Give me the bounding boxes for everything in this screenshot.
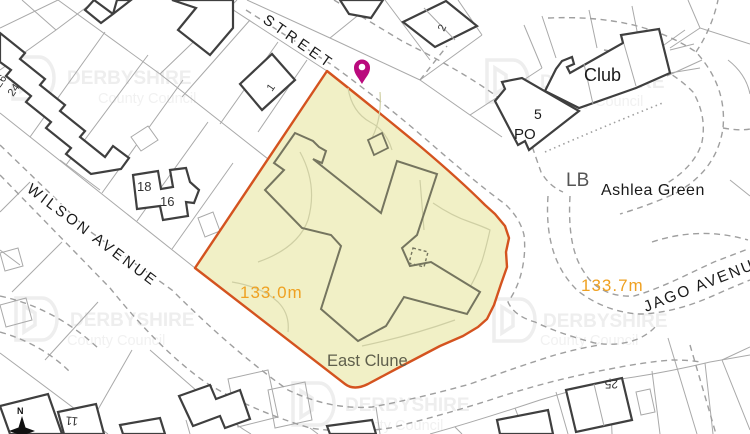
svg-text:County Council: County Council: [98, 91, 196, 107]
svg-text:Club: Club: [584, 65, 621, 85]
svg-text:133.7m: 133.7m: [581, 276, 644, 295]
svg-text:N: N: [17, 406, 24, 416]
svg-text:Ashlea Green: Ashlea Green: [601, 182, 705, 199]
svg-text:133.0m: 133.0m: [240, 283, 303, 302]
svg-text:16: 16: [160, 194, 174, 209]
svg-text:County Council: County Council: [67, 333, 165, 349]
svg-text:County Council: County Council: [540, 333, 638, 349]
svg-text:5: 5: [534, 106, 542, 122]
svg-text:LB: LB: [566, 170, 589, 191]
svg-text:East Clune: East Clune: [327, 352, 408, 370]
svg-text:11: 11: [65, 413, 79, 428]
svg-text:PO: PO: [514, 126, 536, 143]
svg-text:18: 18: [137, 179, 151, 194]
svg-text:DERBYSHIRE: DERBYSHIRE: [70, 310, 195, 331]
svg-text:DERBYSHIRE: DERBYSHIRE: [67, 68, 192, 89]
svg-text:DERBYSHIRE: DERBYSHIRE: [345, 395, 470, 416]
svg-text:25: 25: [604, 377, 618, 391]
